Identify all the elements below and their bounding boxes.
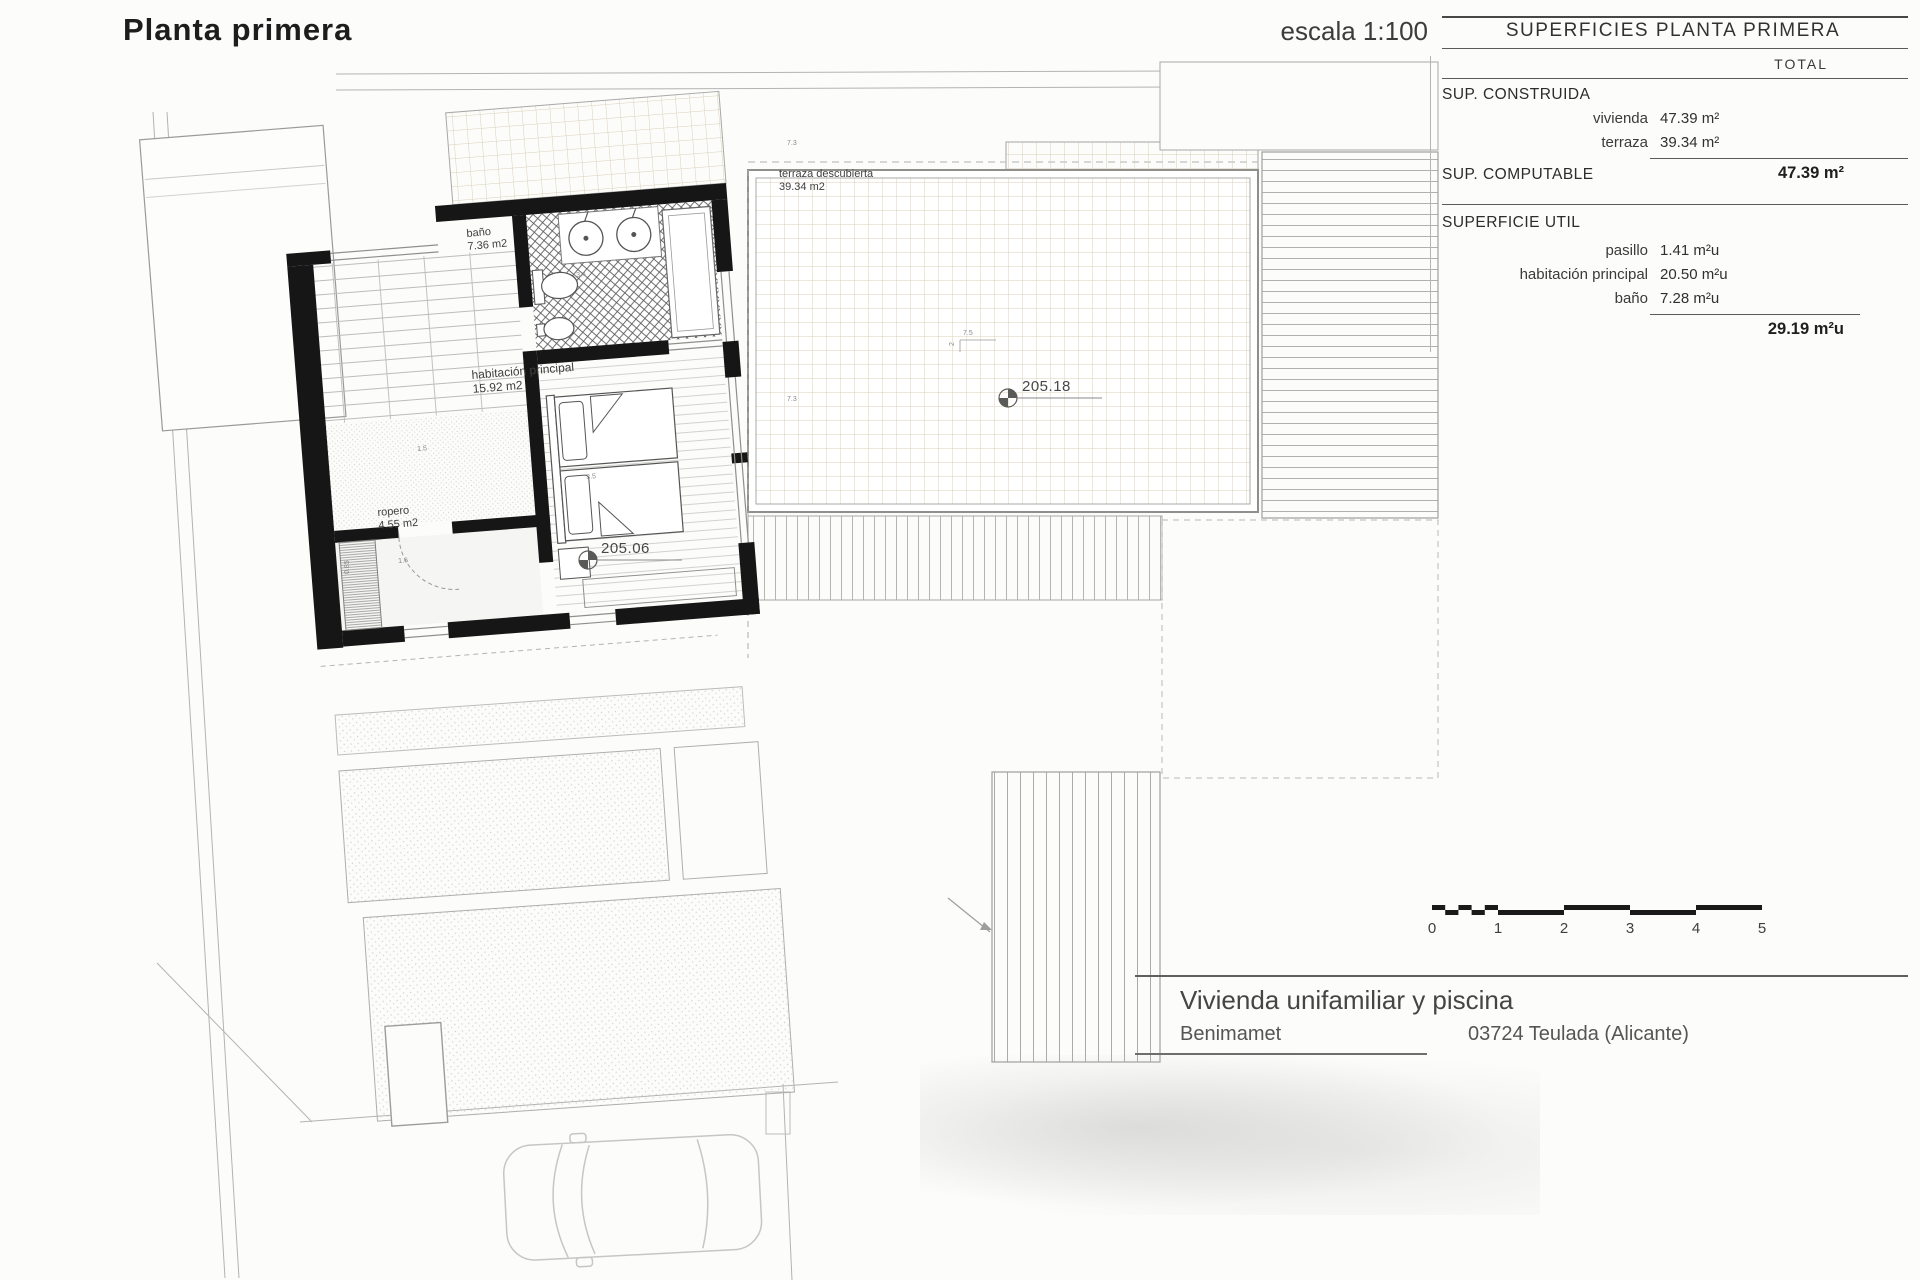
scan-smudge xyxy=(920,1055,1540,1215)
row-label: baño xyxy=(1438,290,1648,307)
table-title: SUPERFICIES PLANTA PRIMERA xyxy=(1438,20,1908,42)
dim-label: 7.3 xyxy=(787,396,797,403)
scale-tick: 0 xyxy=(1419,920,1445,937)
row-label: terraza xyxy=(1438,134,1648,151)
roof-panel-top-right xyxy=(1160,62,1438,150)
title-block-line xyxy=(1135,975,1908,977)
row-value: 47.39 m² xyxy=(1660,110,1719,127)
dim-label: 7.5 xyxy=(963,330,973,337)
dashed-roof-outline xyxy=(1162,520,1438,778)
stair-area xyxy=(948,772,1160,1062)
useful-heading: SUPERFICIE UTIL xyxy=(1442,214,1580,232)
project-title: Vivienda unifamiliar y piscina xyxy=(1180,985,1513,1016)
row-value: 1.41 m²u xyxy=(1660,242,1719,259)
frame-line xyxy=(1430,56,1431,352)
page-title: Planta primera xyxy=(123,12,352,48)
car-icon xyxy=(502,1124,764,1270)
table-total-header: TOTAL xyxy=(1774,56,1828,72)
pergola-strip xyxy=(748,516,1162,600)
level-value: 205.06 xyxy=(601,540,650,557)
wardrobe xyxy=(339,540,382,631)
row-label: pasillo xyxy=(1438,242,1648,259)
room-label-ropero: ropero 4.55 m2 xyxy=(377,504,419,532)
dim-label: 3.5 xyxy=(586,473,596,481)
scale-tick: 4 xyxy=(1683,920,1709,937)
project-location: Benimamet xyxy=(1180,1023,1281,1046)
project-address: 03724 Teulada (Alicante) xyxy=(1468,1023,1689,1046)
dim-label: 7.3 xyxy=(787,140,797,147)
scale-label: escala 1:100 xyxy=(1030,16,1428,47)
row-value: 39.34 m² xyxy=(1660,134,1719,151)
room-label-terraza: terraza descubierta 39.34 m2 xyxy=(779,168,873,193)
computable-heading: SUP. COMPUTABLE xyxy=(1442,166,1594,184)
garden-plots xyxy=(335,685,795,1128)
row-value: 7.28 m²u xyxy=(1660,290,1719,307)
dim-label: 2 xyxy=(949,342,956,346)
dim-label: 1.6 xyxy=(398,557,408,565)
scale-bar xyxy=(1432,905,1762,915)
computable-total: 47.39 m² xyxy=(1778,164,1844,183)
level-value: 205.18 xyxy=(1022,378,1071,395)
constructed-heading: SUP. CONSTRUIDA xyxy=(1442,86,1590,104)
row-label: vivienda xyxy=(1438,110,1648,127)
dim-label: 1.5 xyxy=(417,445,427,453)
roof-louvers-right xyxy=(1262,152,1438,518)
row-label: habitación principal xyxy=(1438,266,1648,283)
useful-total: 29.19 m²u xyxy=(1768,320,1844,339)
scale-tick: 3 xyxy=(1617,920,1643,937)
scale-tick: 1 xyxy=(1485,920,1511,937)
room-label-bano: baño 7.36 m2 xyxy=(466,225,508,253)
row-value: 20.50 m²u xyxy=(1660,266,1728,283)
scale-tick: 5 xyxy=(1749,920,1775,937)
drawing-sheet: Planta primera escala 1:100 SUPERFICIES … xyxy=(0,0,1920,1280)
surfaces-table: SUPERFICIES PLANTA PRIMERA TOTAL SUP. CO… xyxy=(1438,14,1908,359)
scale-tick: 2 xyxy=(1551,920,1577,937)
dim-label: 0.85 xyxy=(344,560,351,574)
dim-label: 3.4 xyxy=(576,271,586,279)
